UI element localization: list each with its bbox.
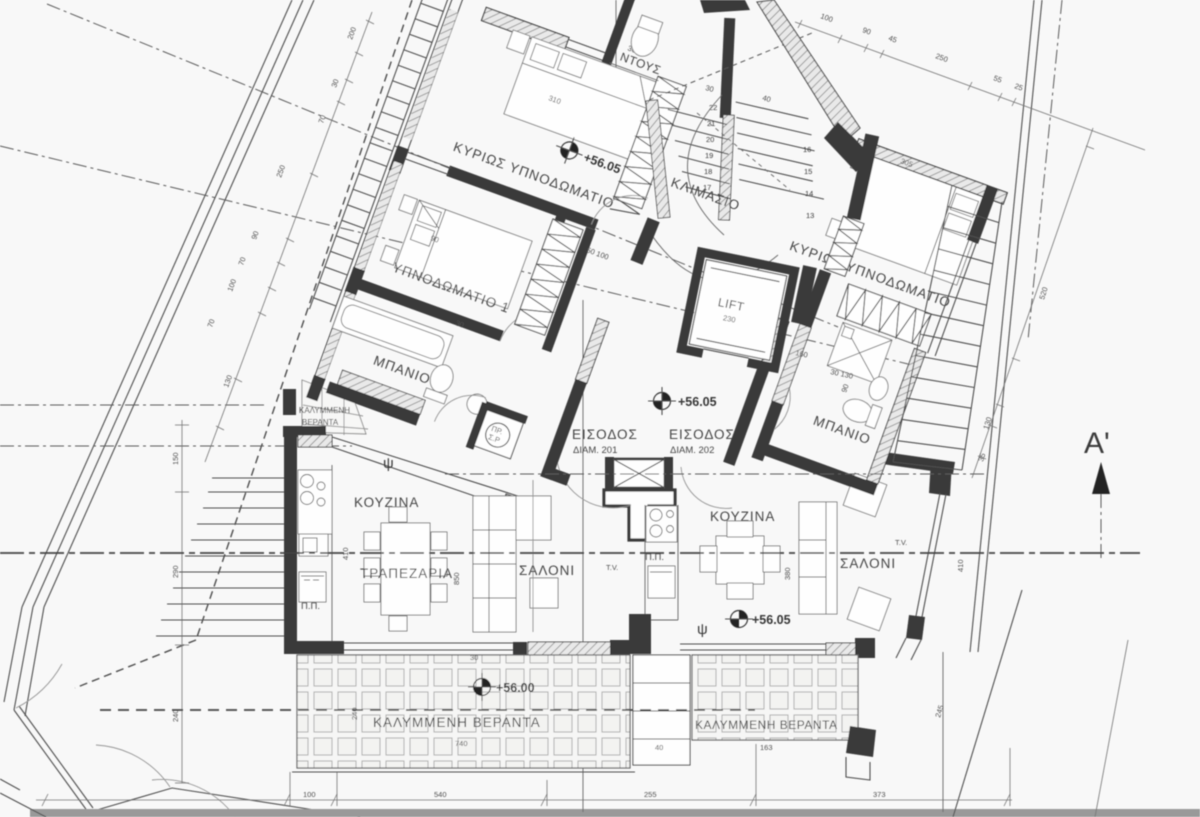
- svg-text:540: 540: [434, 790, 447, 799]
- svg-text:ΣΑΛΟΝΙ: ΣΑΛΟΝΙ: [840, 556, 896, 571]
- svg-text:410: 410: [956, 559, 965, 572]
- svg-text:740: 740: [455, 739, 468, 748]
- svg-text:ΚΟΥΖΙΝΑ: ΚΟΥΖΙΝΑ: [354, 495, 419, 510]
- svg-text:15: 15: [804, 167, 812, 176]
- svg-text:A': A': [1084, 427, 1110, 460]
- svg-text:ΚΑΛΥΜΜΕΝΗ: ΚΑΛΥΜΜΕΝΗ: [299, 406, 350, 415]
- svg-text:ΤΡΑΠΕΖΑΡΙΑ: ΤΡΑΠΕΖΑΡΙΑ: [360, 566, 453, 581]
- svg-text:30: 30: [470, 653, 478, 662]
- svg-text:240: 240: [171, 709, 180, 722]
- svg-text:20: 20: [706, 135, 714, 144]
- svg-text:163: 163: [760, 743, 773, 752]
- svg-text:Τ.V.: Τ.V.: [606, 563, 618, 572]
- svg-text:ΚΑΛΥΜΜΕΝΗ ΒΕΡΑΝΤΑ: ΚΑΛΥΜΜΕΝΗ ΒΕΡΑΝΤΑ: [695, 718, 838, 732]
- svg-text:255: 255: [644, 790, 657, 799]
- svg-text:290: 290: [171, 565, 180, 578]
- svg-text:ΚΑΛΥΜΜΕΝΗ ΒΕΡΑΝΤΑ: ΚΑΛΥΜΜΕΝΗ ΒΕΡΑΝΤΑ: [373, 715, 541, 730]
- svg-text:16: 16: [803, 145, 811, 154]
- svg-text:ΕΙΣΟΔΟΣ: ΕΙΣΟΔΟΣ: [669, 427, 735, 442]
- svg-text:+56.05: +56.05: [678, 395, 717, 409]
- svg-text:ΕΙΣΟΔΟΣ: ΕΙΣΟΔΟΣ: [572, 427, 638, 442]
- svg-text:ψ: ψ: [697, 621, 708, 638]
- svg-text:+56.00: +56.00: [496, 681, 535, 695]
- svg-text:ψ: ψ: [383, 455, 394, 472]
- svg-text:ΒΕΡΑΝΤΑ: ΒΕΡΑΝΤΑ: [302, 418, 339, 427]
- svg-text:150: 150: [171, 452, 180, 465]
- svg-text:Τ.V.: Τ.V.: [895, 538, 907, 547]
- svg-text:13: 13: [806, 211, 814, 220]
- svg-text:100: 100: [303, 790, 316, 799]
- svg-text:ΔΙΑΜ. 201: ΔΙΑΜ. 201: [573, 445, 617, 456]
- svg-text:373: 373: [873, 790, 886, 799]
- svg-text:22: 22: [709, 103, 717, 112]
- svg-text:19: 19: [705, 151, 713, 160]
- svg-text:Π.Π.: Π.Π.: [301, 601, 320, 612]
- svg-text:18: 18: [704, 167, 712, 176]
- svg-text:+56.05: +56.05: [752, 613, 791, 627]
- svg-text:14: 14: [805, 189, 813, 198]
- svg-text:380: 380: [783, 567, 792, 580]
- svg-text:40: 40: [655, 743, 663, 752]
- svg-text:ΔΙΑΜ. 202: ΔΙΑΜ. 202: [670, 445, 714, 456]
- svg-text:850: 850: [452, 572, 461, 585]
- svg-text:ΣΑΛΟΝΙ: ΣΑΛΟΝΙ: [519, 563, 575, 578]
- svg-text:21: 21: [707, 119, 715, 128]
